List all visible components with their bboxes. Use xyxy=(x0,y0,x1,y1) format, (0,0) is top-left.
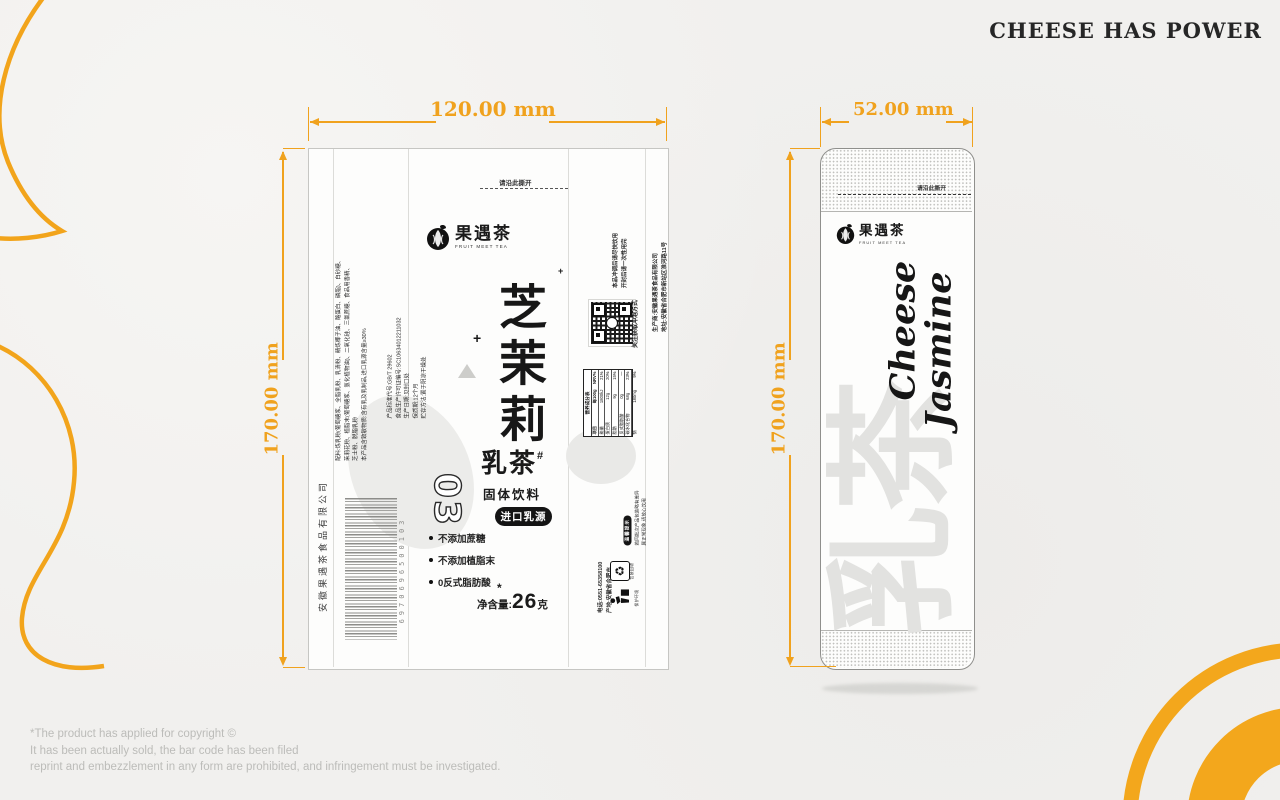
standards-line: 产品标准代号:GB/T 29602 xyxy=(387,234,396,419)
feature-text: 不添加植脂末 xyxy=(438,553,495,567)
nutrition-cell: 钠 xyxy=(632,406,638,436)
net-weight-value: 26 xyxy=(512,590,537,614)
design-presentation-canvas: CHEESE HAS POWER 请沿此撕开 果遇茶 FRUIT MEET TE… xyxy=(0,0,1280,800)
nutrition-cell: 21% xyxy=(599,370,605,387)
brand-logo: 果遇茶 FRUIT MEET TEA xyxy=(836,224,906,245)
copyright-disclaimer: *The product has applied for copyright ©… xyxy=(30,726,500,776)
dimension-arrow xyxy=(822,118,831,126)
brew-note-line: 开封后请一次性用完 xyxy=(621,228,630,288)
nutrition-cell: 碳水化合物 xyxy=(625,406,631,436)
top-seal-band xyxy=(821,149,972,212)
dimension-line xyxy=(282,455,284,663)
product-title-en: Cheese Jasmine xyxy=(886,259,971,429)
dimension-tick xyxy=(666,107,667,141)
fold-line xyxy=(645,149,646,667)
sparkle-icon: + xyxy=(558,267,563,276)
nutrition-row: 钠180mg9% xyxy=(632,370,638,436)
contact-line: 电话:0551-65358100 xyxy=(597,553,606,613)
nutrition-header: 每100g xyxy=(592,387,598,406)
brand-name-en: FRUIT MEET TEA xyxy=(455,244,512,249)
qr-caption: 关注获取冲泡方式 xyxy=(630,300,640,348)
packaging-icons: 保护环境 ♻ 包装回收 xyxy=(610,545,638,607)
dimension-line xyxy=(789,152,791,360)
bullet-dot-icon xyxy=(429,580,433,584)
dimension-left-height: 170.00 mm xyxy=(262,361,284,456)
nutrition-cell: 9g xyxy=(612,387,618,406)
qr-finder-pattern xyxy=(592,303,606,317)
barcode xyxy=(345,498,397,640)
tips-pill: 温馨提示 xyxy=(624,515,632,545)
tips-line: 若同批次产品包装略有差异 xyxy=(634,481,641,546)
standards-line: 食品生产许可证编号:SC10634012211032 xyxy=(395,234,404,419)
net-weight-label: 净含量: xyxy=(477,597,512,612)
nutrition-cell: 15% xyxy=(612,370,618,387)
brand-logo-icon xyxy=(836,224,855,245)
dimension-tick xyxy=(820,107,821,147)
nutrition-cell: 能量 xyxy=(599,406,605,436)
nutrition-cell: 脂肪 xyxy=(612,406,618,436)
dimension-arrow xyxy=(279,151,287,160)
feature-item: 不添加蔗糖 xyxy=(429,531,495,545)
brew-note: 本品冲调后请尽快饮用 开封后请一次性用完 xyxy=(612,228,638,288)
dimension-line xyxy=(789,455,791,663)
dimension-arrow xyxy=(963,118,972,126)
imported-milk-badge: 进口乳源 xyxy=(495,507,552,526)
tear-dashed-line xyxy=(480,188,568,189)
standards-text: 产品标准代号:GB/T 29602 食品生产许可证编号:SC1063401221… xyxy=(387,234,417,419)
brand-name-cn: 果遇茶 xyxy=(859,224,906,238)
nutrition-cell: 蛋白质 xyxy=(605,406,611,436)
page-title: CHEESE HAS POWER xyxy=(989,18,1262,43)
feature-list: 不添加蔗糖 不添加植脂末 0反式脂肪酸 xyxy=(429,531,495,589)
dimension-arrow xyxy=(279,657,287,666)
nutrition-cell: 23% xyxy=(625,370,631,387)
contact-block: 电话:0551-65358100 产地:安徽省合肥市 xyxy=(597,553,611,613)
dimension-tick xyxy=(790,666,836,667)
brand-logo-icon xyxy=(426,225,450,251)
company-name-vertical: 安徽果遇茶食品有限公司 xyxy=(316,486,330,612)
nutrition-header: 项目 xyxy=(592,406,598,436)
ingredients-line: 配料:炼乳粉(葡萄糖浆、全脂乳粉、乳清粉、精炼椰子油、酪蛋白、磷脂)、白砂糖、 xyxy=(335,233,344,461)
tear-dashed-line xyxy=(838,194,971,195)
ingredients-text: 配料:炼乳粉(葡萄糖浆、全脂乳粉、乳清粉、精炼椰子油、酪蛋白、磷脂)、白砂糖、 … xyxy=(335,233,367,461)
product-subtitle: 乳茶# xyxy=(481,450,543,477)
feature-text: 不添加蔗糖 xyxy=(438,531,486,545)
nutrition-cell: — xyxy=(619,370,625,387)
disclaimer-line: reprint and embezzlement in any form are… xyxy=(30,759,500,776)
product-form-label: 固体饮料 xyxy=(483,484,541,503)
nutrition-cell: 9% xyxy=(632,370,638,387)
tear-here-label: 请沿此撕开 xyxy=(499,177,532,187)
nutrition-cell: 180mg xyxy=(632,387,638,406)
nutrition-cell: 20% xyxy=(605,370,611,387)
title-line: Cheese xyxy=(886,259,922,401)
dimension-tick xyxy=(972,107,973,147)
tidyman-icon xyxy=(610,589,630,607)
disclaimer-line: It has been actually sold, the bar code … xyxy=(30,743,500,760)
tidyman-icon-group: 保护环境 xyxy=(610,589,640,607)
fold-line xyxy=(333,149,334,667)
dimension-tick xyxy=(283,667,305,668)
dimension-tick xyxy=(790,148,820,149)
net-weight-unit: 克 xyxy=(537,597,548,612)
nutrition-table-wrapper: 营养成分表 项目 每100g NRV% 能量1800kJ21% 蛋白质12g20… xyxy=(583,371,631,437)
brand-name-en: FRUIT MEET TEA xyxy=(859,240,906,245)
dimension-line xyxy=(282,152,284,360)
feature-item: 不添加植脂末 xyxy=(429,553,495,567)
qr-code xyxy=(589,300,635,346)
standards-line: 保质期:12个月 xyxy=(412,234,421,419)
nutrition-row: 脂肪9g15% xyxy=(612,370,619,436)
series-number: 03 xyxy=(426,469,464,531)
qr-finder-pattern xyxy=(592,329,606,343)
dimension-arrow xyxy=(786,151,794,160)
nutrition-header: NRV% xyxy=(592,370,598,387)
nutrition-cell: 1800kJ xyxy=(599,387,605,406)
nutrition-table: 营养成分表 项目 每100g NRV% 能量1800kJ21% 蛋白质12g20… xyxy=(583,369,633,437)
dimension-right-height: 170.00 mm xyxy=(769,361,791,456)
nutrition-row: 蛋白质12g20% xyxy=(605,370,612,436)
bullet-dot-icon xyxy=(429,536,433,540)
manufacturer-text: 生产商:安徽果遇茶食品有限公司 地址:安徽省合肥市新站区淮河路11号 xyxy=(652,232,668,332)
recycle-label: 包装回收 xyxy=(630,561,635,581)
nutrition-header-row: 项目 每100g NRV% xyxy=(592,370,599,436)
dimension-left-width: 120.00 mm xyxy=(430,97,545,121)
brew-note-line: 本品冲调后请尽快饮用 xyxy=(612,228,621,288)
disclaimer-line: *The product has applied for copyright © xyxy=(30,726,500,743)
dimension-arrow xyxy=(786,657,794,666)
dimension-line xyxy=(310,121,436,123)
manufacturer-line: 地址:安徽省合肥市新站区淮河路11号 xyxy=(661,232,670,332)
dimension-right-width: 52.00 mm xyxy=(853,99,943,120)
product-type: 乳茶 xyxy=(481,448,537,478)
qr-center-logo xyxy=(606,317,618,329)
ingredients-line: 芝士粉、脱脂乳粉 xyxy=(352,233,361,461)
allergen-line: 本产品含致敏物质:含有乳及乳制品,进口乳源含量≥30% xyxy=(361,233,370,461)
nutrition-row: 碳水化合物68g23% xyxy=(625,370,632,436)
tear-here-label: 请沿此撕开 xyxy=(917,183,946,192)
brand-logo: 果遇茶 FRUIT MEET TEA xyxy=(426,225,512,251)
product-title-cn: 芝茉莉 xyxy=(494,282,542,462)
fold-line xyxy=(568,149,569,667)
manufacturer-line: 生产商:安徽果遇茶食品有限公司 xyxy=(652,232,661,332)
dimension-arrow xyxy=(656,118,665,126)
nutrition-cell: 反式脂肪酸 xyxy=(619,406,625,436)
nutrition-cell: 68g xyxy=(625,387,631,406)
nutrition-cell: 0g xyxy=(619,387,625,406)
recycle-icon: ♻ xyxy=(610,561,630,581)
gray-triangle-shape xyxy=(458,364,476,378)
standards-line: 贮存方法:置于阴凉干燥处 xyxy=(421,234,430,419)
ingredients-line: 茉莉花粉、植脂末(葡萄糖浆、氢化植物油)、二氧化硅、三氯蔗糖、食品用香精、 xyxy=(344,233,353,461)
brand-name-cn: 果遇茶 xyxy=(455,225,512,242)
bullet-dot-icon xyxy=(429,558,433,562)
dimension-tick xyxy=(283,148,305,149)
net-weight: * 净含量: 26 克 xyxy=(477,586,548,614)
tips-block: 温馨提示 若同批次产品包装略有差异 属正常现象,请放心饮用 xyxy=(616,481,642,546)
package-shadow xyxy=(822,683,978,694)
nutrition-cell: 12g xyxy=(605,387,611,406)
recycle-icon-group: ♻ 包装回收 xyxy=(610,561,635,581)
dimension-line xyxy=(549,121,665,123)
title-line: Jasmine xyxy=(921,259,957,429)
tips-line: 属正常现象,请放心饮用 xyxy=(641,481,648,546)
hash-mark: # xyxy=(537,450,543,462)
dimension-tick xyxy=(308,107,309,141)
sparkle-icon: + xyxy=(473,331,481,345)
nutrition-title: 营养成分表 xyxy=(584,370,592,436)
tidyman-label: 保护环境 xyxy=(635,589,640,607)
barcode-digits: 6970696500103 xyxy=(398,500,406,640)
standards-line: 生产日期:见封口处 xyxy=(404,234,413,419)
dimension-arrow xyxy=(310,118,319,126)
